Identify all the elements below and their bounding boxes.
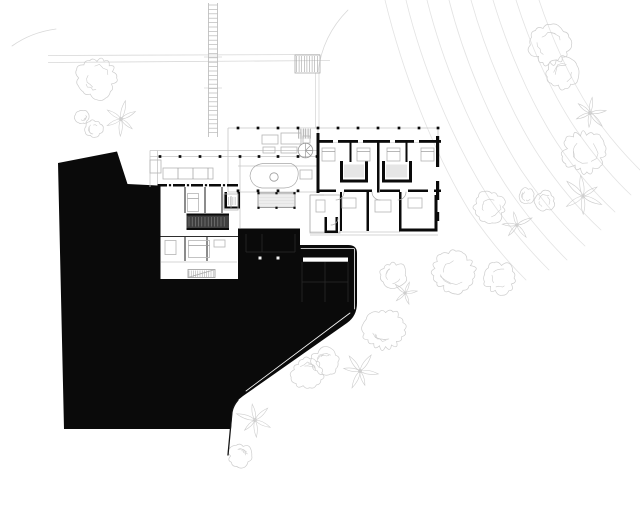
floor-plan-svg bbox=[0, 0, 640, 512]
site-features-layer bbox=[12, 3, 348, 137]
terrain-mass bbox=[58, 152, 357, 456]
site-plan bbox=[0, 0, 640, 512]
